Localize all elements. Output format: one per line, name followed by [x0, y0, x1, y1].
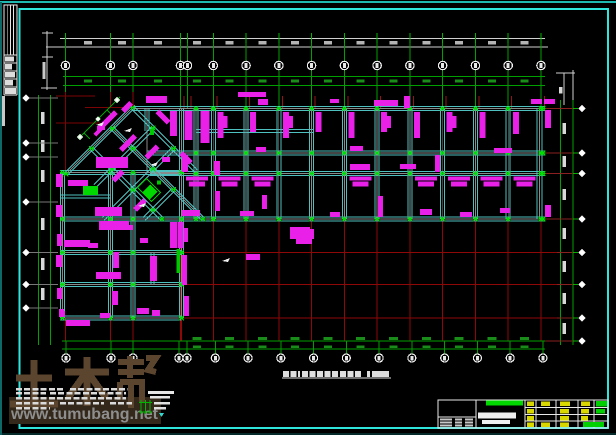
svg-text:www.tumubang.net: www.tumubang.net	[10, 406, 159, 423]
